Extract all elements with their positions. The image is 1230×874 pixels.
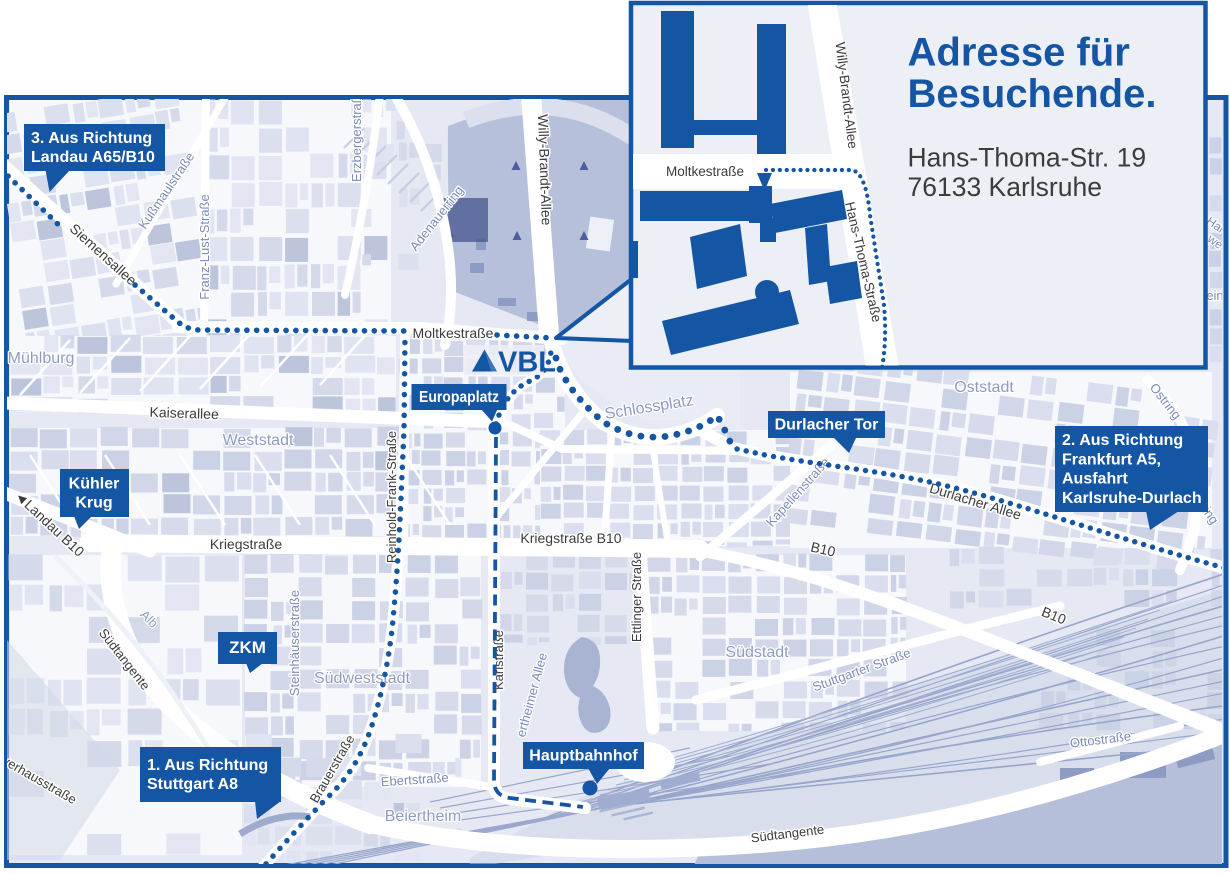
svg-text:Moltkestraße: Moltkestraße <box>666 164 744 179</box>
svg-text:Erzbergerstraße: Erzbergerstraße <box>349 88 364 182</box>
svg-text:3. Aus Richtung: 3. Aus Richtung <box>31 130 152 147</box>
svg-text:Besuchende.: Besuchende. <box>908 72 1157 116</box>
svg-text:Adresse für: Adresse für <box>908 31 1130 75</box>
svg-text:Steinhäuserstraße: Steinhäuserstraße <box>287 590 302 696</box>
svg-text:Kaiserallee: Kaiserallee <box>149 404 219 422</box>
svg-text:Karlsruhe-Durlach: Karlsruhe-Durlach <box>1062 490 1202 507</box>
svg-text:2. Aus Richtung: 2. Aus Richtung <box>1062 432 1183 449</box>
svg-text:Frankfurt A5,: Frankfurt A5, <box>1062 451 1161 468</box>
svg-text:VBL: VBL <box>498 347 556 379</box>
svg-text:76133 Karlsruhe: 76133 Karlsruhe <box>908 172 1102 202</box>
svg-text:Hauptbahnhof: Hauptbahnhof <box>529 748 638 765</box>
svg-text:Ettlinger Straße: Ettlinger Straße <box>629 552 644 642</box>
svg-text:Ausfahrt: Ausfahrt <box>1062 471 1128 488</box>
svg-text:ZKM: ZKM <box>229 638 266 657</box>
svg-text:Kriegstraße B10: Kriegstraße B10 <box>520 530 621 546</box>
svg-text:Hans-Thoma-Str. 19: Hans-Thoma-Str. 19 <box>908 143 1147 173</box>
svg-text:Stuttgart A8: Stuttgart A8 <box>147 776 238 793</box>
svg-text:Krug: Krug <box>75 495 112 512</box>
svg-text:Landau A65/B10: Landau A65/B10 <box>31 149 155 166</box>
svg-text:Weststadt: Weststadt <box>223 432 294 449</box>
svg-text:Durlacher Tor: Durlacher Tor <box>775 417 879 434</box>
svg-text:Europaplatz: Europaplatz <box>419 389 499 406</box>
svg-text:ein: ein <box>1206 288 1223 303</box>
svg-text:Mühlburg: Mühlburg <box>8 350 75 367</box>
svg-text:Reinhold-Frank-Straße: Reinhold-Frank-Straße <box>384 431 399 563</box>
svg-text:Franz-Lust-Straße: Franz-Lust-Straße <box>197 194 212 299</box>
svg-text:Kriegstraße: Kriegstraße <box>210 536 283 552</box>
svg-text:Südstadt: Südstadt <box>725 644 789 661</box>
svg-text:Beiertheim: Beiertheim <box>385 808 461 825</box>
svg-text:1. Aus Richtung: 1. Aus Richtung <box>147 757 268 774</box>
svg-text:Oststadt: Oststadt <box>954 379 1014 396</box>
svg-text:Südweststadt: Südweststadt <box>314 670 411 687</box>
svg-text:Kühler: Kühler <box>69 475 120 492</box>
svg-text:Moltkestraße: Moltkestraße <box>413 325 494 341</box>
